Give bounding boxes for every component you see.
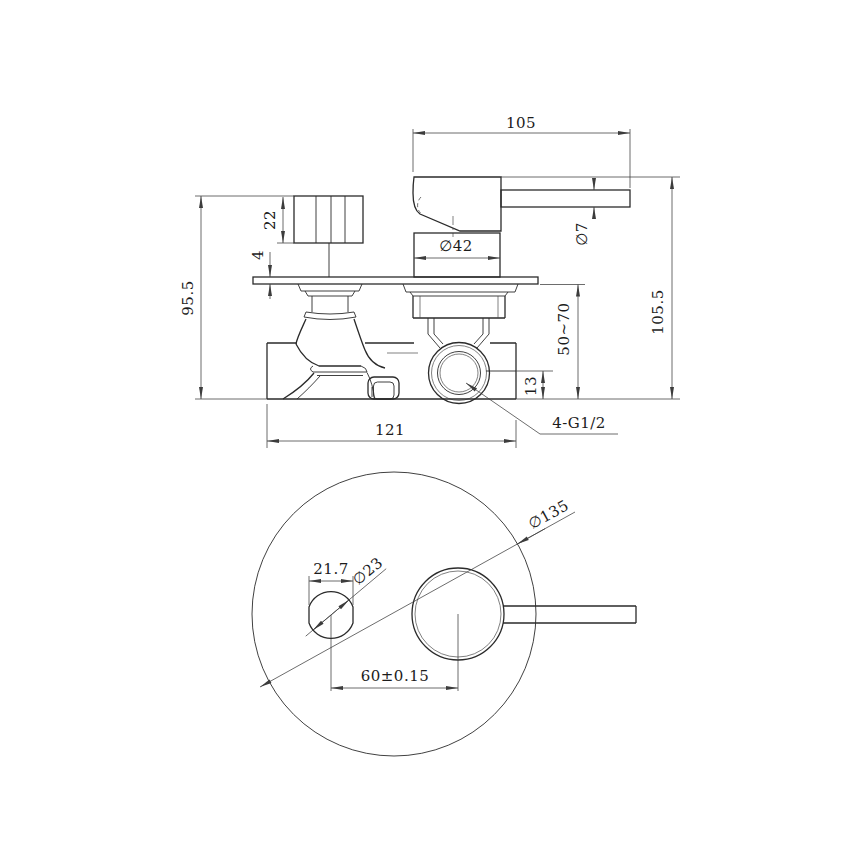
right-valve-collar xyxy=(428,334,489,348)
left-valve-sweep xyxy=(283,373,314,399)
wall-plate xyxy=(253,277,538,284)
dim-overall-height-right: 105.5 xyxy=(649,289,667,334)
front-view: 105 ∅7 ∅42 22 4 95.5 50~70 xyxy=(179,114,680,448)
lever-plan-outline xyxy=(503,606,636,623)
left-flange-inner xyxy=(305,291,355,296)
label-thread-spec: 4-G1/2 xyxy=(552,414,606,432)
escutcheon-plate-circle xyxy=(252,472,536,756)
dim-outlet-offset: 13 xyxy=(522,376,540,396)
plate-outline xyxy=(252,472,636,756)
left-flange xyxy=(298,284,362,291)
right-flange-inner xyxy=(410,292,508,296)
drawing-page: 105 ∅7 ∅42 22 4 95.5 50~70 xyxy=(0,0,850,850)
technical-drawing-svg: 105 ∅7 ∅42 22 4 95.5 50~70 xyxy=(0,0,850,850)
center-port-inner xyxy=(374,382,395,399)
dim-knob-diameter: ∅23 xyxy=(349,553,386,588)
right-flange xyxy=(403,284,518,292)
left-nut xyxy=(304,312,356,320)
dim-depth-range: 50~70 xyxy=(555,302,573,355)
knob-outline xyxy=(294,196,363,243)
dim-knob-flat-width: 21.7 xyxy=(313,560,348,578)
left-neck xyxy=(312,296,348,312)
handle-lever xyxy=(501,190,630,207)
dim-cartridge-diameter: ∅42 xyxy=(439,237,473,255)
dim-center-distance: 60±0.15 xyxy=(361,667,430,685)
dim-lever-diameter: ∅7 xyxy=(573,222,591,246)
right-sleeve xyxy=(413,296,505,318)
dim-handle-length: 105 xyxy=(506,114,536,132)
front-dimensions: 105 ∅7 ∅42 22 4 95.5 50~70 xyxy=(179,114,680,448)
handle-hidden-line xyxy=(418,197,421,213)
left-valve-lip xyxy=(311,366,368,376)
mixer-body-outline xyxy=(253,177,630,404)
left-valve-scoop xyxy=(296,344,361,366)
dim-body-width: 121 xyxy=(375,421,405,439)
left-valve-left-edge xyxy=(296,319,306,344)
outlet-ring-inner xyxy=(440,354,478,392)
handle-head xyxy=(413,177,501,231)
right-valve-neck xyxy=(428,318,489,334)
dim-knob-height: 22 xyxy=(261,210,279,230)
dim-overall-height-left: 95.5 xyxy=(179,280,197,315)
dim-plate-diameter: ∅135 xyxy=(525,496,572,533)
dim-plate-thickness: 4 xyxy=(249,250,267,260)
bottom-view: ∅135 ∅23 21.7 60±0.15 xyxy=(252,472,636,756)
outlet-ring-3 xyxy=(438,352,481,395)
valve-body-block xyxy=(267,343,516,399)
right-sleeve-bore xyxy=(420,296,498,318)
